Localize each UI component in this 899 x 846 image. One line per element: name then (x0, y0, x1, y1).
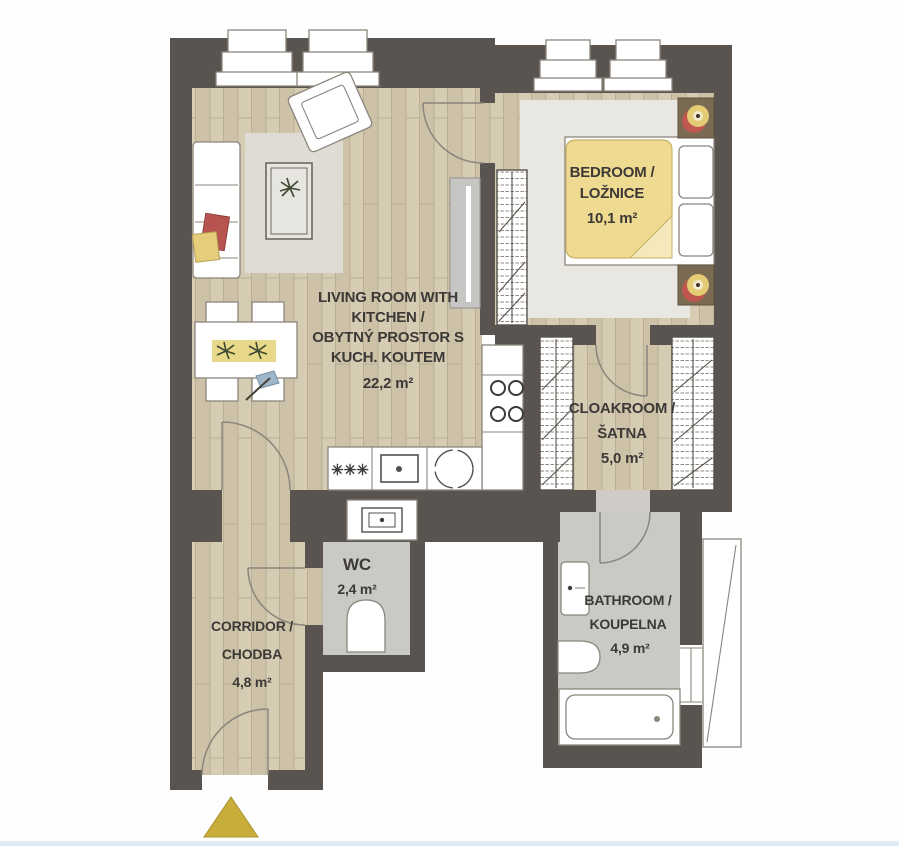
room-name: ŠATNA (597, 424, 647, 442)
bathtub-icon (559, 689, 680, 745)
bedroom-cloak-door-floor (596, 325, 650, 345)
wall-segment (543, 512, 558, 768)
room-name: OBYTNÝ PROSTOR S (312, 328, 464, 346)
room-name: BATHROOM / (584, 592, 671, 608)
entrance-arrow-icon (204, 797, 258, 837)
coffee-table (266, 163, 312, 239)
kitchen-counter-vertical (482, 345, 523, 490)
sofa (192, 142, 240, 278)
wall-segment (480, 38, 495, 93)
room-area: 4,8 m² (232, 674, 272, 690)
room-name: CHODBA (222, 646, 282, 662)
sink-drain-icon (396, 466, 402, 472)
wall-segment (523, 345, 540, 490)
wall-segment (170, 770, 202, 790)
wall-segment (480, 93, 495, 103)
room-name: CLOAKROOM / (569, 400, 676, 417)
wc-toilet-icon (347, 600, 385, 652)
wc-door-floor (305, 568, 323, 625)
wall-segment (480, 163, 495, 335)
wall-segment (323, 655, 425, 672)
wall-segment (170, 38, 192, 790)
bathroom-shaft-window (680, 647, 702, 703)
room-name: CORRIDOR / (211, 618, 293, 634)
room-name: LIVING ROOM WITH (318, 289, 458, 306)
dishwasher-icon: ✳✳✳ (331, 462, 369, 479)
unit-handle (466, 186, 471, 302)
bathroom-door-floor (596, 490, 650, 512)
bath-toilet-icon (558, 641, 600, 673)
wall-segment (305, 625, 323, 788)
room-name: KUCH. KOUTEM (331, 349, 445, 366)
room-area: 5,0 m² (601, 450, 643, 467)
wall-segment (410, 542, 425, 655)
wall-segment (290, 490, 560, 542)
wall-segment (680, 503, 702, 645)
yellow-pillow (192, 232, 219, 263)
exterior-door-leaf (703, 539, 741, 747)
nightstand-bottom (678, 265, 714, 305)
room-name: BEDROOM / (570, 164, 656, 181)
wall-segment (305, 542, 323, 568)
room-area: 10,1 m² (587, 210, 637, 227)
room-name: KITCHEN / (351, 309, 425, 326)
living-bedroom-door-floor (480, 100, 495, 163)
table-runner (212, 340, 276, 362)
pillow (679, 204, 713, 256)
floor-plan: ✳✳✳ (0, 0, 899, 846)
room-area: 22,2 m² (363, 375, 413, 392)
wall-segment (268, 770, 323, 790)
chair (206, 376, 238, 401)
room-name: KOUPELNA (590, 616, 667, 632)
nightstand-top (678, 98, 714, 138)
living-corridor-door-floor (222, 490, 290, 542)
room-area: 2,4 m² (337, 581, 377, 597)
room-name: LOŽNICE (580, 184, 645, 202)
floor-plan-page: ✳✳✳ (0, 0, 899, 846)
living-window-1 (216, 30, 298, 86)
scan-edge (0, 841, 899, 846)
wall-segment (543, 745, 702, 768)
wall-segment (714, 93, 732, 503)
pillow (679, 146, 713, 198)
room-name: WC (343, 555, 371, 574)
room-area: 4,9 m² (610, 640, 650, 656)
wall-segment (192, 490, 222, 542)
